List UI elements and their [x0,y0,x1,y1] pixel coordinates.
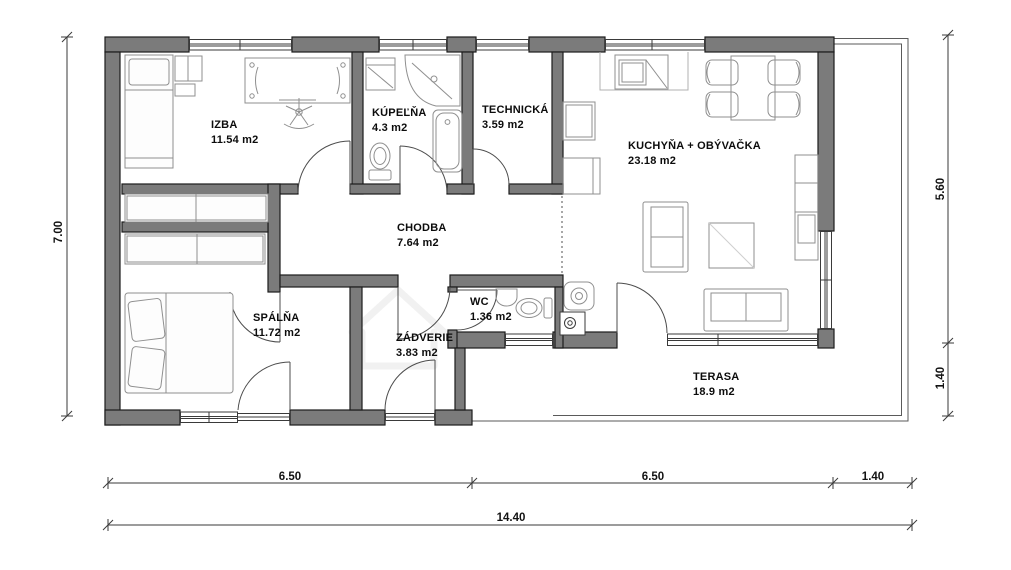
dim-label-bottom-left: 6.50 [279,471,301,483]
room-area: 18.9 m2 [693,385,739,400]
desk [245,58,350,103]
toilet-bathroom [369,143,391,180]
door-glazing-bedroom [238,414,290,421]
room-name: CHODBA [397,221,446,236]
toilet-wc [516,298,552,318]
dining-chair [768,60,800,85]
room-label-chodba: CHODBA 7.64 m2 [397,221,446,250]
window-kupelna [379,40,447,51]
single-bed [125,55,173,168]
room-area: 1.36 m2 [470,310,512,325]
room-area: 11.54 m2 [211,133,258,148]
room-name: KÚPEĽŇA [372,106,427,121]
room-area: 11.72 m2 [253,326,300,341]
room-name: TECHNICKÁ [482,103,549,118]
room-name: IZBA [211,118,258,133]
window-izba [189,40,292,51]
room-area: 7.64 m2 [397,236,446,251]
terrace-outline [472,39,908,422]
dim-label-left-height: 7.00 [53,221,65,243]
door-terrace [617,283,667,333]
door-technicka [473,149,509,185]
room-label-kuchyna: KUCHYŇA + OBÝVAČKA 23.18 m2 [628,139,761,168]
window-living-side [821,231,832,329]
tv-cabinet [795,155,818,260]
kitchen-cabinet-lower [563,158,600,194]
floor-plan: IZBA 11.54 m2 KÚPEĽŇA 4.3 m2 TECHNICKÁ 3… [0,0,1011,570]
coffee-table [709,223,754,268]
water-heater [564,282,594,310]
floor-unit [560,312,585,335]
room-name: KUCHYŇA + OBÝVAČKA [628,139,761,154]
door-kupelna [400,146,447,193]
kitchen-cabinet-upper [563,102,595,140]
double-bed [125,293,233,393]
window-kitchen [605,40,705,51]
kitchen-sink [615,55,668,89]
wardrobe-row-top [125,194,268,222]
dim-label-right-upper: 5.60 [935,178,947,200]
room-label-kupelna: KÚPEĽŇA 4.3 m2 [372,106,427,135]
door-izba [298,141,350,193]
room-name: TERASA [693,370,739,385]
dim-label-right-lower: 1.40 [935,367,947,389]
room-label-wc: WC 1.36 m2 [470,295,512,324]
room-area: 3.59 m2 [482,118,549,133]
corner-shower [405,55,460,106]
room-label-spalna: SPÁLŇA 11.72 m2 [253,311,300,340]
room-label-zadverie: ZÁDVERIE 3.83 m2 [396,331,453,360]
room-label-terasa: TERASA 18.9 m2 [693,370,739,399]
dining-chair [706,92,738,117]
door-glazing-entrance [385,414,435,421]
dining-chair [706,60,738,85]
dim-label-bottom-total: 14.40 [497,512,526,524]
dim-bottom-segments [103,477,917,489]
room-area: 3.83 m2 [396,346,453,361]
window-bedroom [180,412,238,423]
washing-machine [366,58,395,90]
wardrobe-row-bottom [125,234,265,264]
window-terrace [667,334,818,346]
dining-chair [768,92,800,117]
window-technicka [476,40,529,51]
room-label-izba: IZBA 11.54 m2 [211,118,258,147]
dim-label-bottom-right: 1.40 [862,471,884,483]
room-area: 4.3 m2 [372,121,427,136]
room-label-technicka: TECHNICKÁ 3.59 m2 [482,103,549,132]
dim-label-bottom-middle: 6.50 [642,471,664,483]
sofa [704,289,788,331]
loveseat [643,202,688,272]
bathtub [433,110,462,172]
dim-right [942,30,954,421]
room-name: ZÁDVERIE [396,331,453,346]
room-name: SPÁLŇA [253,311,300,326]
bedside-cabinet [175,56,202,96]
door-bedroom-exterior [238,362,290,410]
room-area: 23.18 m2 [628,154,761,169]
kitchen-counter [600,52,688,90]
window-wc [505,334,553,346]
room-name: WC [470,295,512,310]
floor-plan-canvas [0,0,1011,570]
